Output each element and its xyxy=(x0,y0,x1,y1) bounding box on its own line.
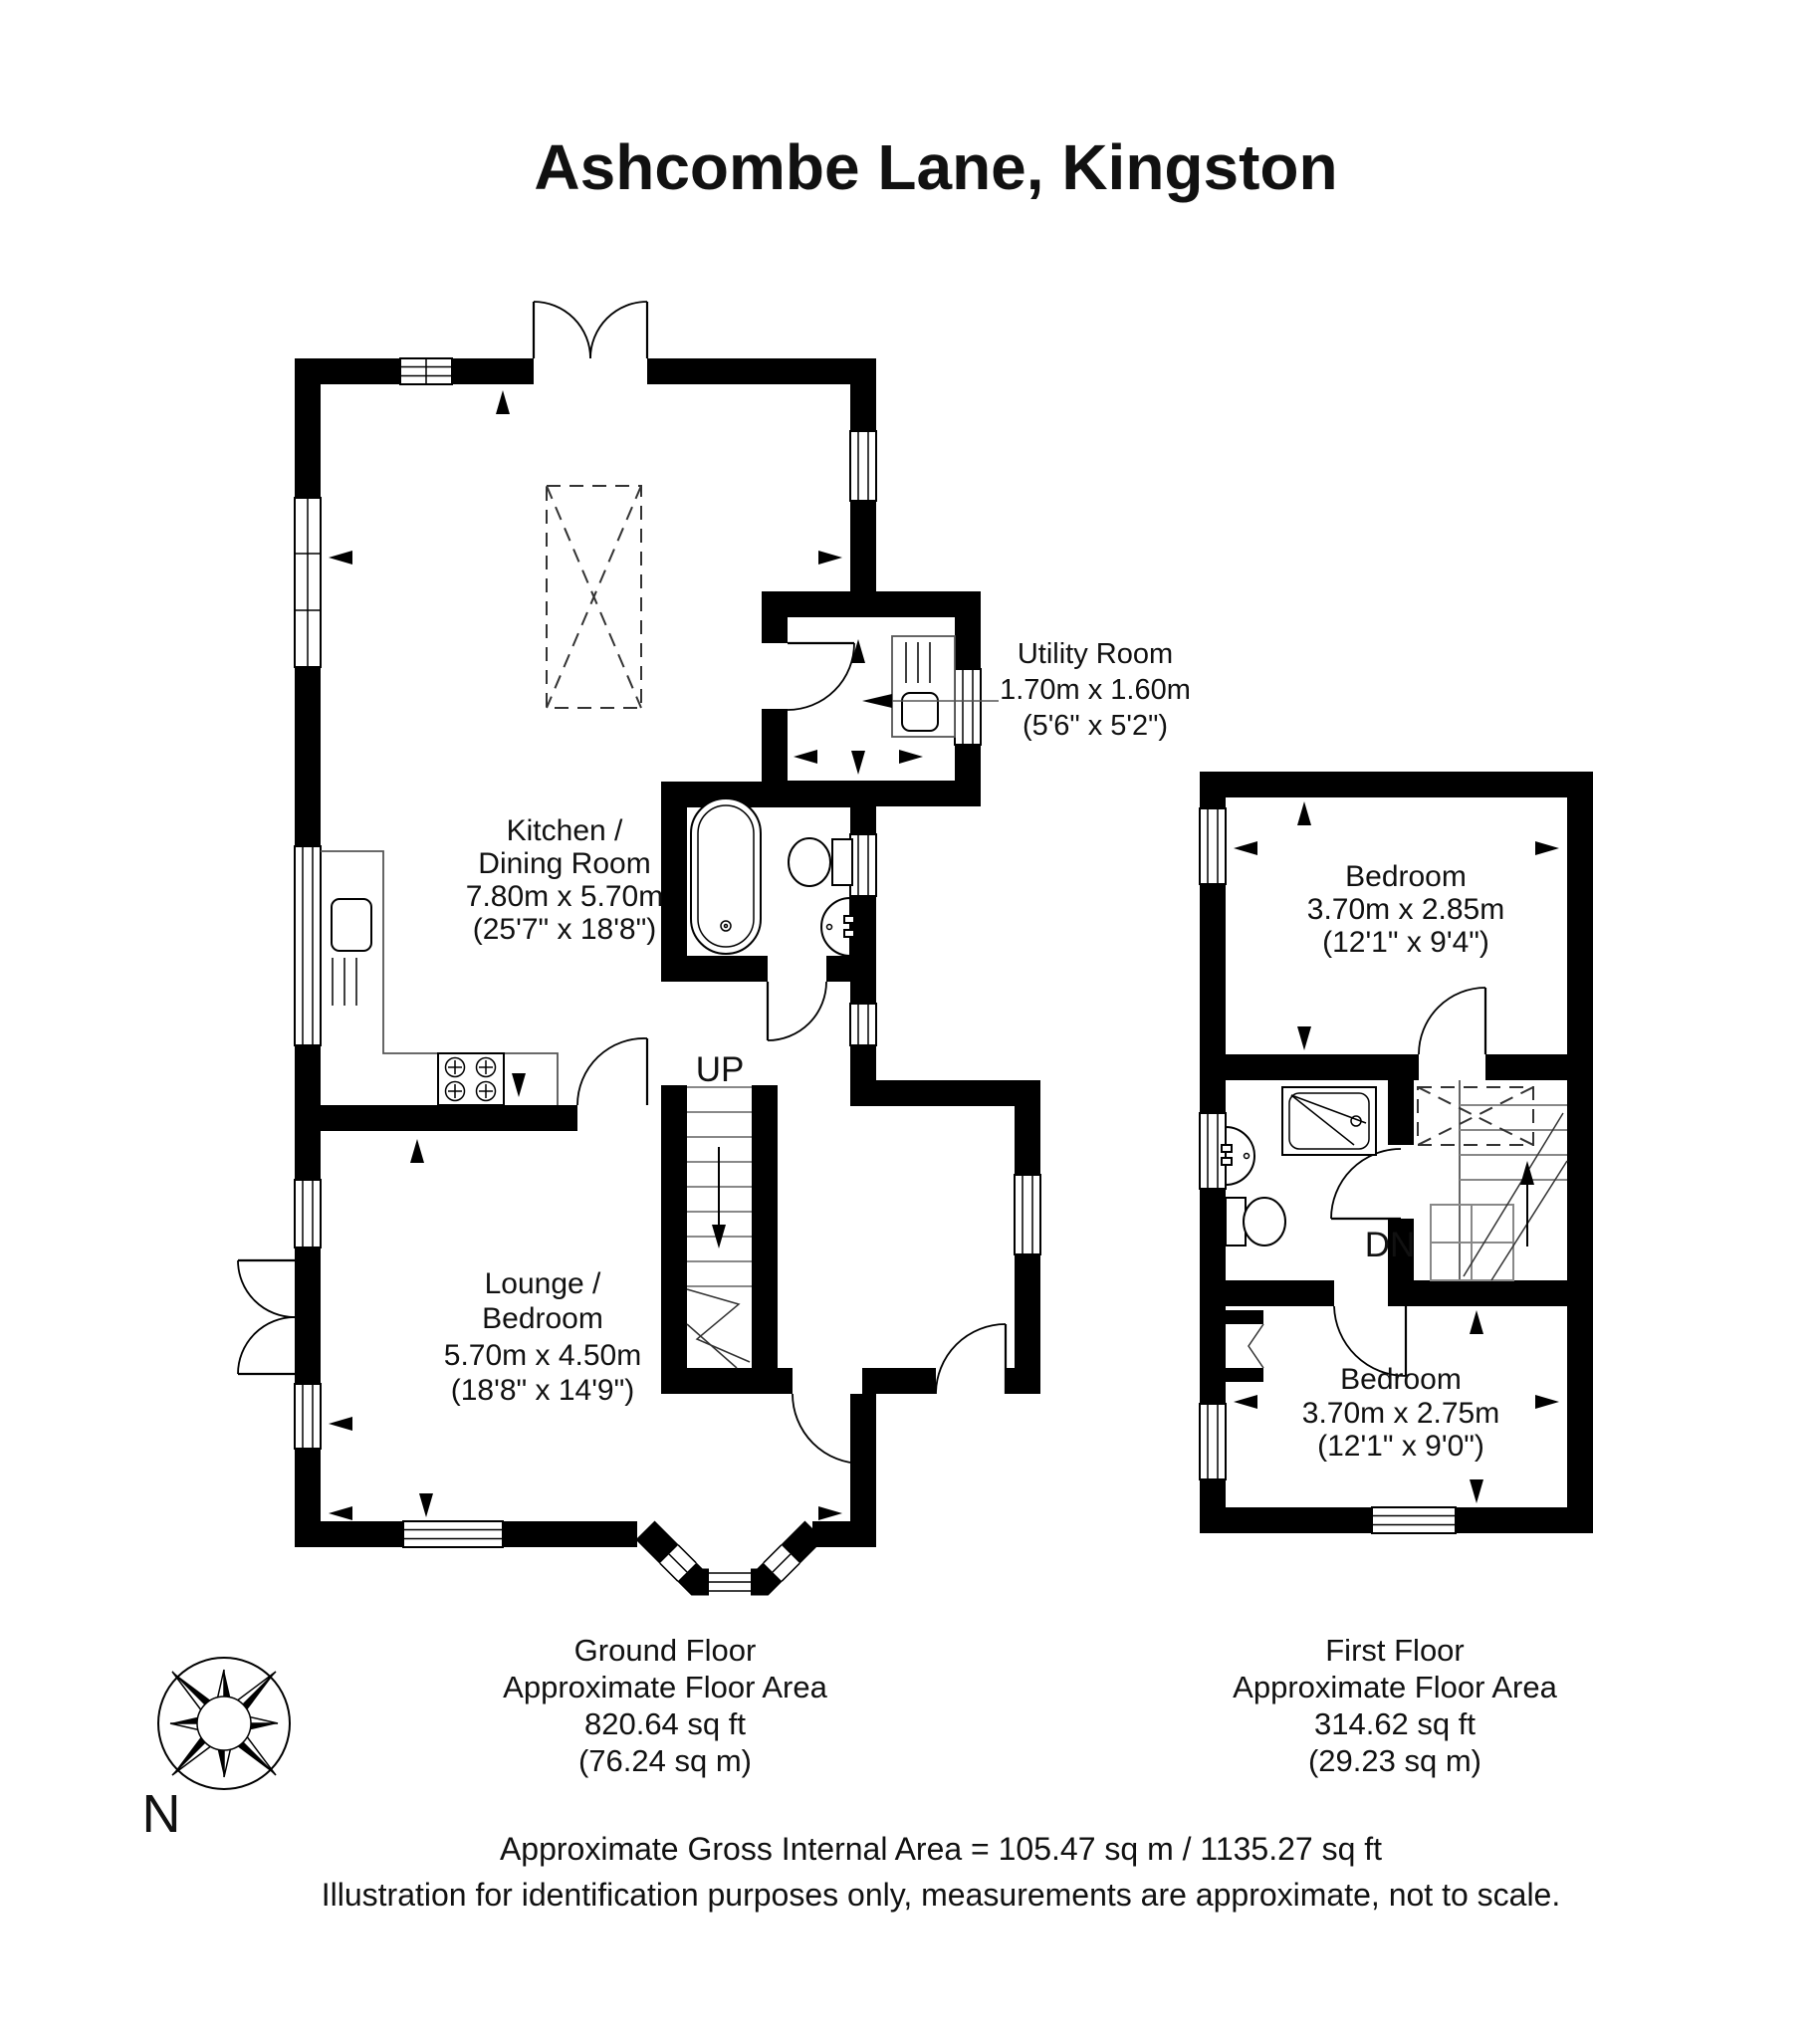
french-doors xyxy=(238,1260,295,1374)
page-title: Ashcombe Lane, Kingston xyxy=(534,131,1337,203)
door-swing xyxy=(768,982,826,1040)
door-swing xyxy=(1331,1149,1401,1219)
door-swing xyxy=(1419,988,1485,1054)
window xyxy=(295,498,321,667)
svg-text:7.80m x 5.70m: 7.80m x 5.70m xyxy=(466,880,663,913)
svg-text:3.70m x 2.75m: 3.70m x 2.75m xyxy=(1302,1397,1499,1430)
svg-text:Bedroom: Bedroom xyxy=(1340,1363,1462,1396)
area-summary-first: First Floor Approximate Floor Area 314.6… xyxy=(1233,1633,1557,1778)
svg-text:5.70m x 4.50m: 5.70m x 4.50m xyxy=(444,1339,641,1372)
stairs-up-label: UP xyxy=(696,1050,745,1089)
svg-text:3.70m x 2.85m: 3.70m x 2.85m xyxy=(1307,893,1504,926)
kitchen-label: Kitchen / Dining Room 7.80m x 5.70m (25'… xyxy=(466,814,663,946)
svg-text:(5'6" x 5'2"): (5'6" x 5'2") xyxy=(1023,710,1168,742)
lounge-label: Lounge / Bedroom 5.70m x 4.50m (18'8" x … xyxy=(444,1267,641,1407)
window xyxy=(850,1004,876,1045)
stove-icon xyxy=(438,1053,504,1105)
stairs-down-label: DN xyxy=(1365,1226,1416,1264)
svg-text:(76.24 sq m): (76.24 sq m) xyxy=(578,1743,752,1778)
svg-text:Approximate Floor Area: Approximate Floor Area xyxy=(1233,1670,1557,1704)
window xyxy=(1200,1404,1226,1479)
svg-text:Lounge /: Lounge / xyxy=(485,1267,601,1300)
footer-notes: Approximate Gross Internal Area = 105.47… xyxy=(322,1831,1560,1913)
svg-text:Ground Floor: Ground Floor xyxy=(574,1633,757,1668)
svg-text:820.64 sq ft: 820.64 sq ft xyxy=(584,1706,746,1741)
svg-text:(12'1" x 9'4"): (12'1" x 9'4") xyxy=(1322,926,1489,959)
window xyxy=(850,834,876,896)
door-swing xyxy=(788,643,854,710)
ground-floor-plan: UP Kitchen / Dining Room 7.80m x 5.70m (… xyxy=(238,302,1191,1591)
compass-rose: N xyxy=(142,1658,291,1844)
disclaimer-text: Illustration for identification purposes… xyxy=(322,1877,1560,1913)
sink-icon xyxy=(1222,1127,1254,1185)
first-floor-plan: DN Bedroom 3.70m x 2.85m (12'1" x 9'4") … xyxy=(1200,772,1593,1533)
door-swing xyxy=(577,1038,647,1105)
window xyxy=(295,1384,321,1449)
north-label: N xyxy=(142,1784,181,1844)
kitchen-sink-icon xyxy=(332,899,371,1006)
window xyxy=(1200,808,1226,884)
window xyxy=(403,1521,503,1547)
area-summary-ground: Ground Floor Approximate Floor Area 820.… xyxy=(503,1633,827,1778)
svg-text:(12'1" x 9'0"): (12'1" x 9'0") xyxy=(1317,1430,1484,1463)
window xyxy=(1372,1507,1456,1533)
svg-text:Dining Room: Dining Room xyxy=(478,847,650,880)
window xyxy=(400,358,452,384)
rooflight-dashed xyxy=(547,486,641,708)
bathtub-icon xyxy=(691,798,761,954)
toilet-icon xyxy=(789,838,852,886)
svg-text:(25'7" x 18'8"): (25'7" x 18'8") xyxy=(473,913,657,946)
stairs-up: UP xyxy=(687,1050,752,1368)
french-doors xyxy=(534,302,647,358)
sink-icon xyxy=(821,898,854,956)
svg-text:Approximate Floor Area: Approximate Floor Area xyxy=(503,1670,827,1704)
svg-text:Bedroom: Bedroom xyxy=(1345,860,1467,893)
window xyxy=(295,1180,321,1247)
svg-text:First Floor: First Floor xyxy=(1325,1633,1465,1668)
bedroom1-label: Bedroom 3.70m x 2.85m (12'1" x 9'4") xyxy=(1307,860,1504,959)
window xyxy=(955,669,981,745)
svg-text:Bedroom: Bedroom xyxy=(482,1302,603,1335)
gross-area-text: Approximate Gross Internal Area = 105.47… xyxy=(500,1831,1382,1867)
svg-text:Utility Room: Utility Room xyxy=(1018,638,1173,670)
svg-text:(18'8" x 14'9"): (18'8" x 14'9") xyxy=(451,1374,635,1407)
floor-plan-canvas: Ashcombe Lane, Kingston xyxy=(0,0,1820,2039)
svg-text:Kitchen /: Kitchen / xyxy=(507,814,623,847)
svg-text:1.70m x 1.60m: 1.70m x 1.60m xyxy=(1000,674,1191,706)
svg-text:314.62 sq ft: 314.62 sq ft xyxy=(1314,1706,1476,1741)
svg-text:(29.23 sq m): (29.23 sq m) xyxy=(1308,1743,1481,1778)
bedroom2-label: Bedroom 3.70m x 2.75m (12'1" x 9'0") xyxy=(1302,1363,1499,1463)
window xyxy=(295,846,321,1045)
shower-icon xyxy=(1282,1087,1376,1155)
toilet-icon xyxy=(1226,1198,1285,1246)
door-swing xyxy=(936,1324,1006,1394)
utility-counter xyxy=(892,636,955,737)
window xyxy=(1015,1175,1040,1254)
window xyxy=(850,431,876,501)
chimney-breast xyxy=(1226,1310,1263,1382)
utility-label: Utility Room 1.70m x 1.60m (5'6" x 5'2") xyxy=(1000,638,1191,742)
